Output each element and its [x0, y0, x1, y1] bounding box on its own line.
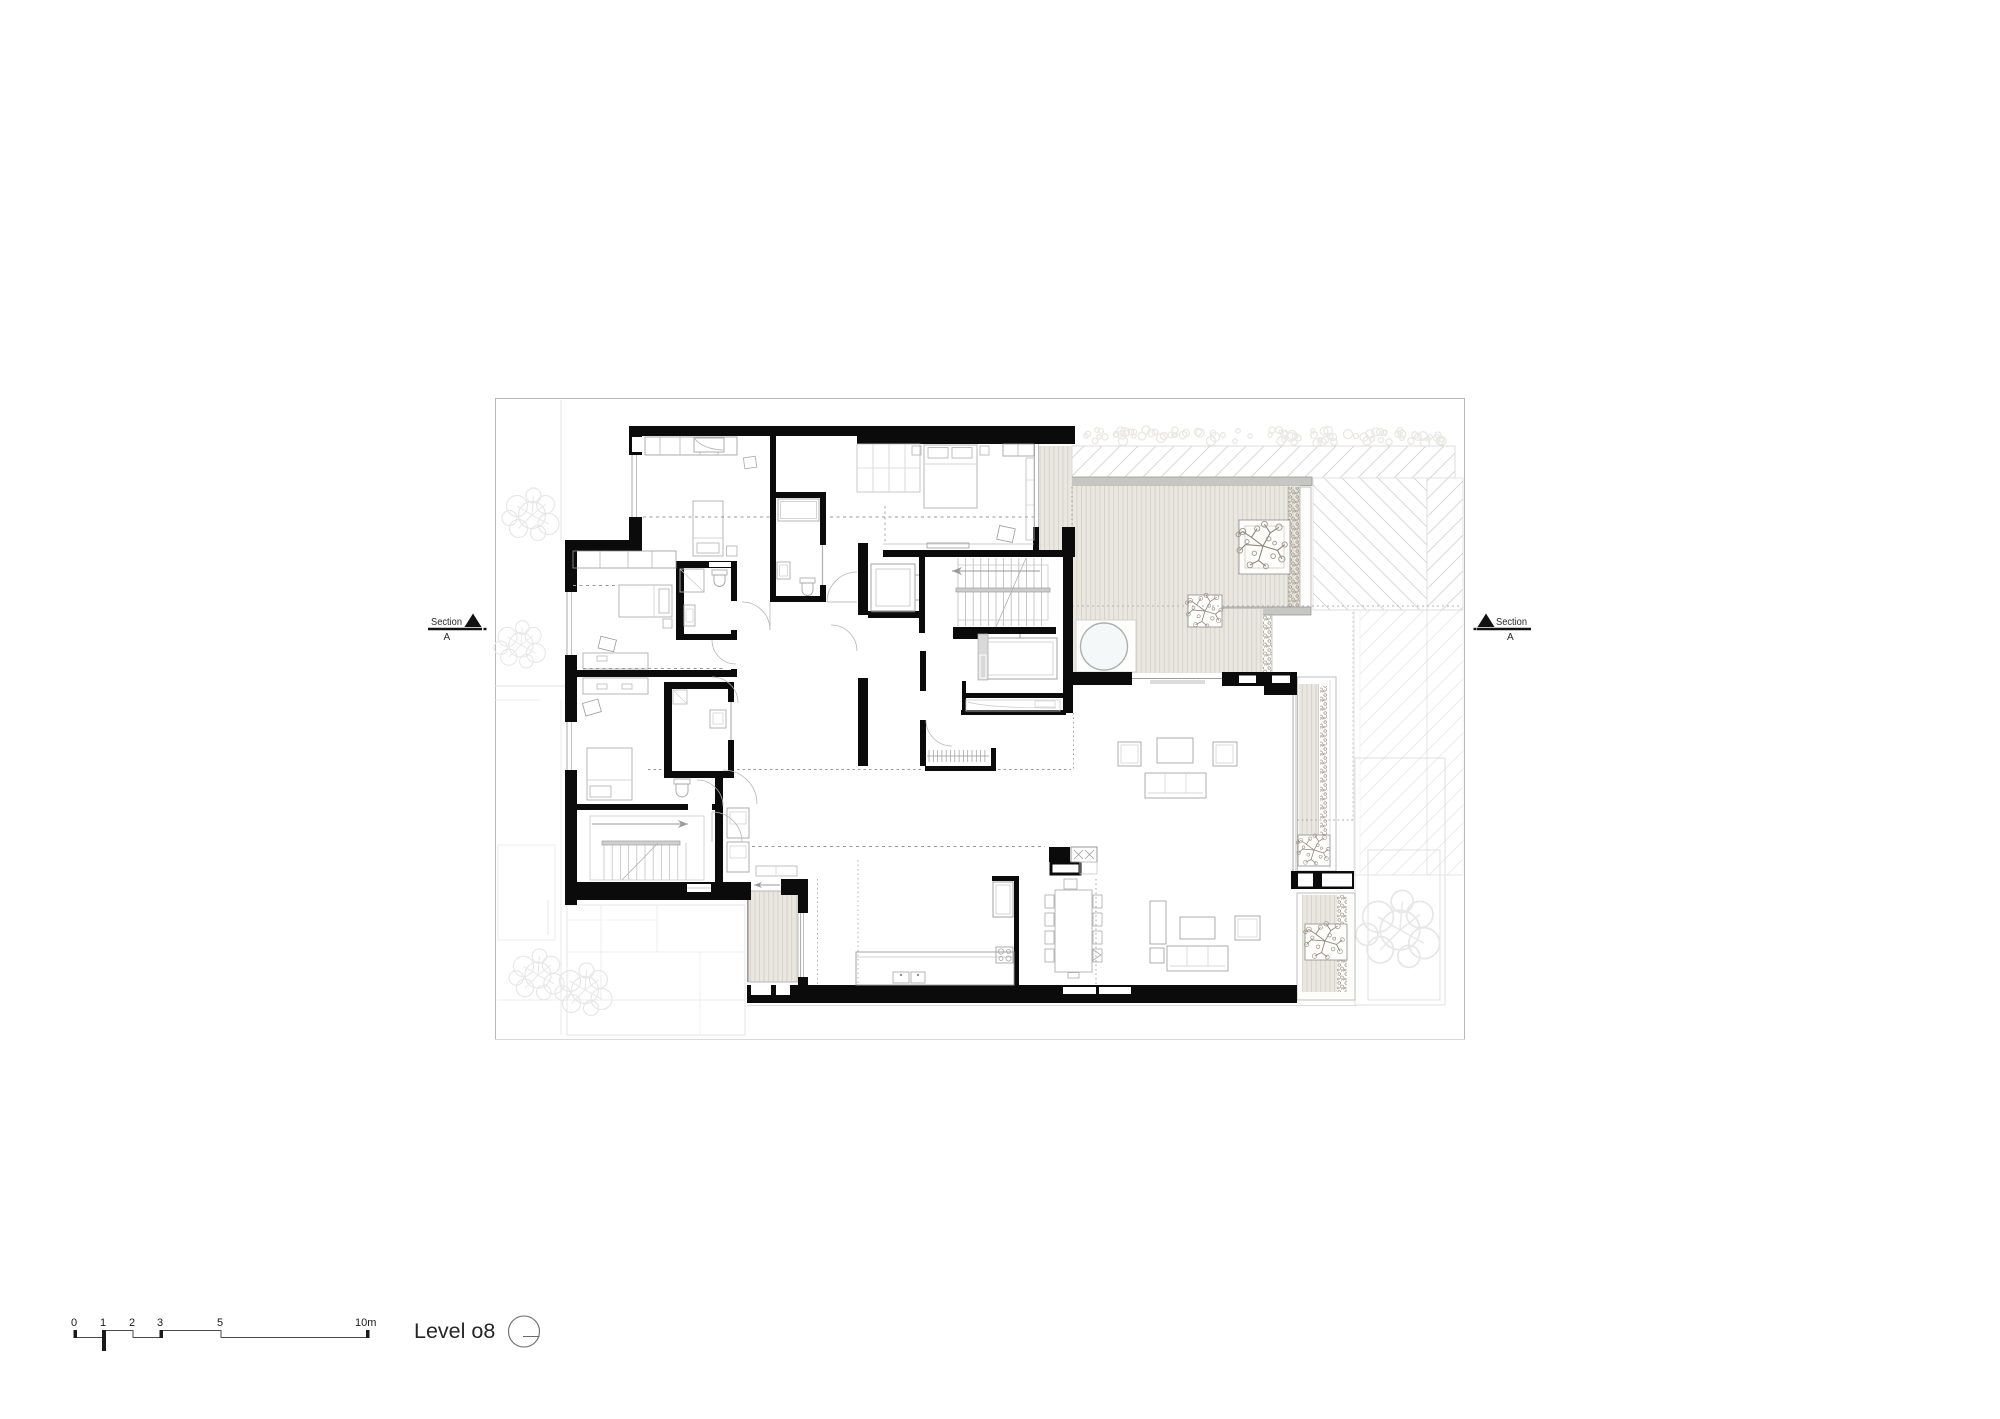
- svg-text:A: A: [444, 632, 451, 643]
- svg-text:1: 1: [100, 1317, 106, 1329]
- svg-text:0: 0: [71, 1317, 77, 1329]
- svg-text:Section: Section: [431, 617, 462, 628]
- svg-text:2: 2: [129, 1317, 135, 1329]
- svg-text:3: 3: [157, 1317, 163, 1329]
- svg-text:Section: Section: [1496, 617, 1527, 628]
- svg-text:A: A: [1507, 632, 1514, 643]
- svg-text:10m: 10m: [355, 1317, 376, 1329]
- svg-text:Level o8: Level o8: [414, 1319, 495, 1343]
- svg-text:5: 5: [217, 1317, 223, 1329]
